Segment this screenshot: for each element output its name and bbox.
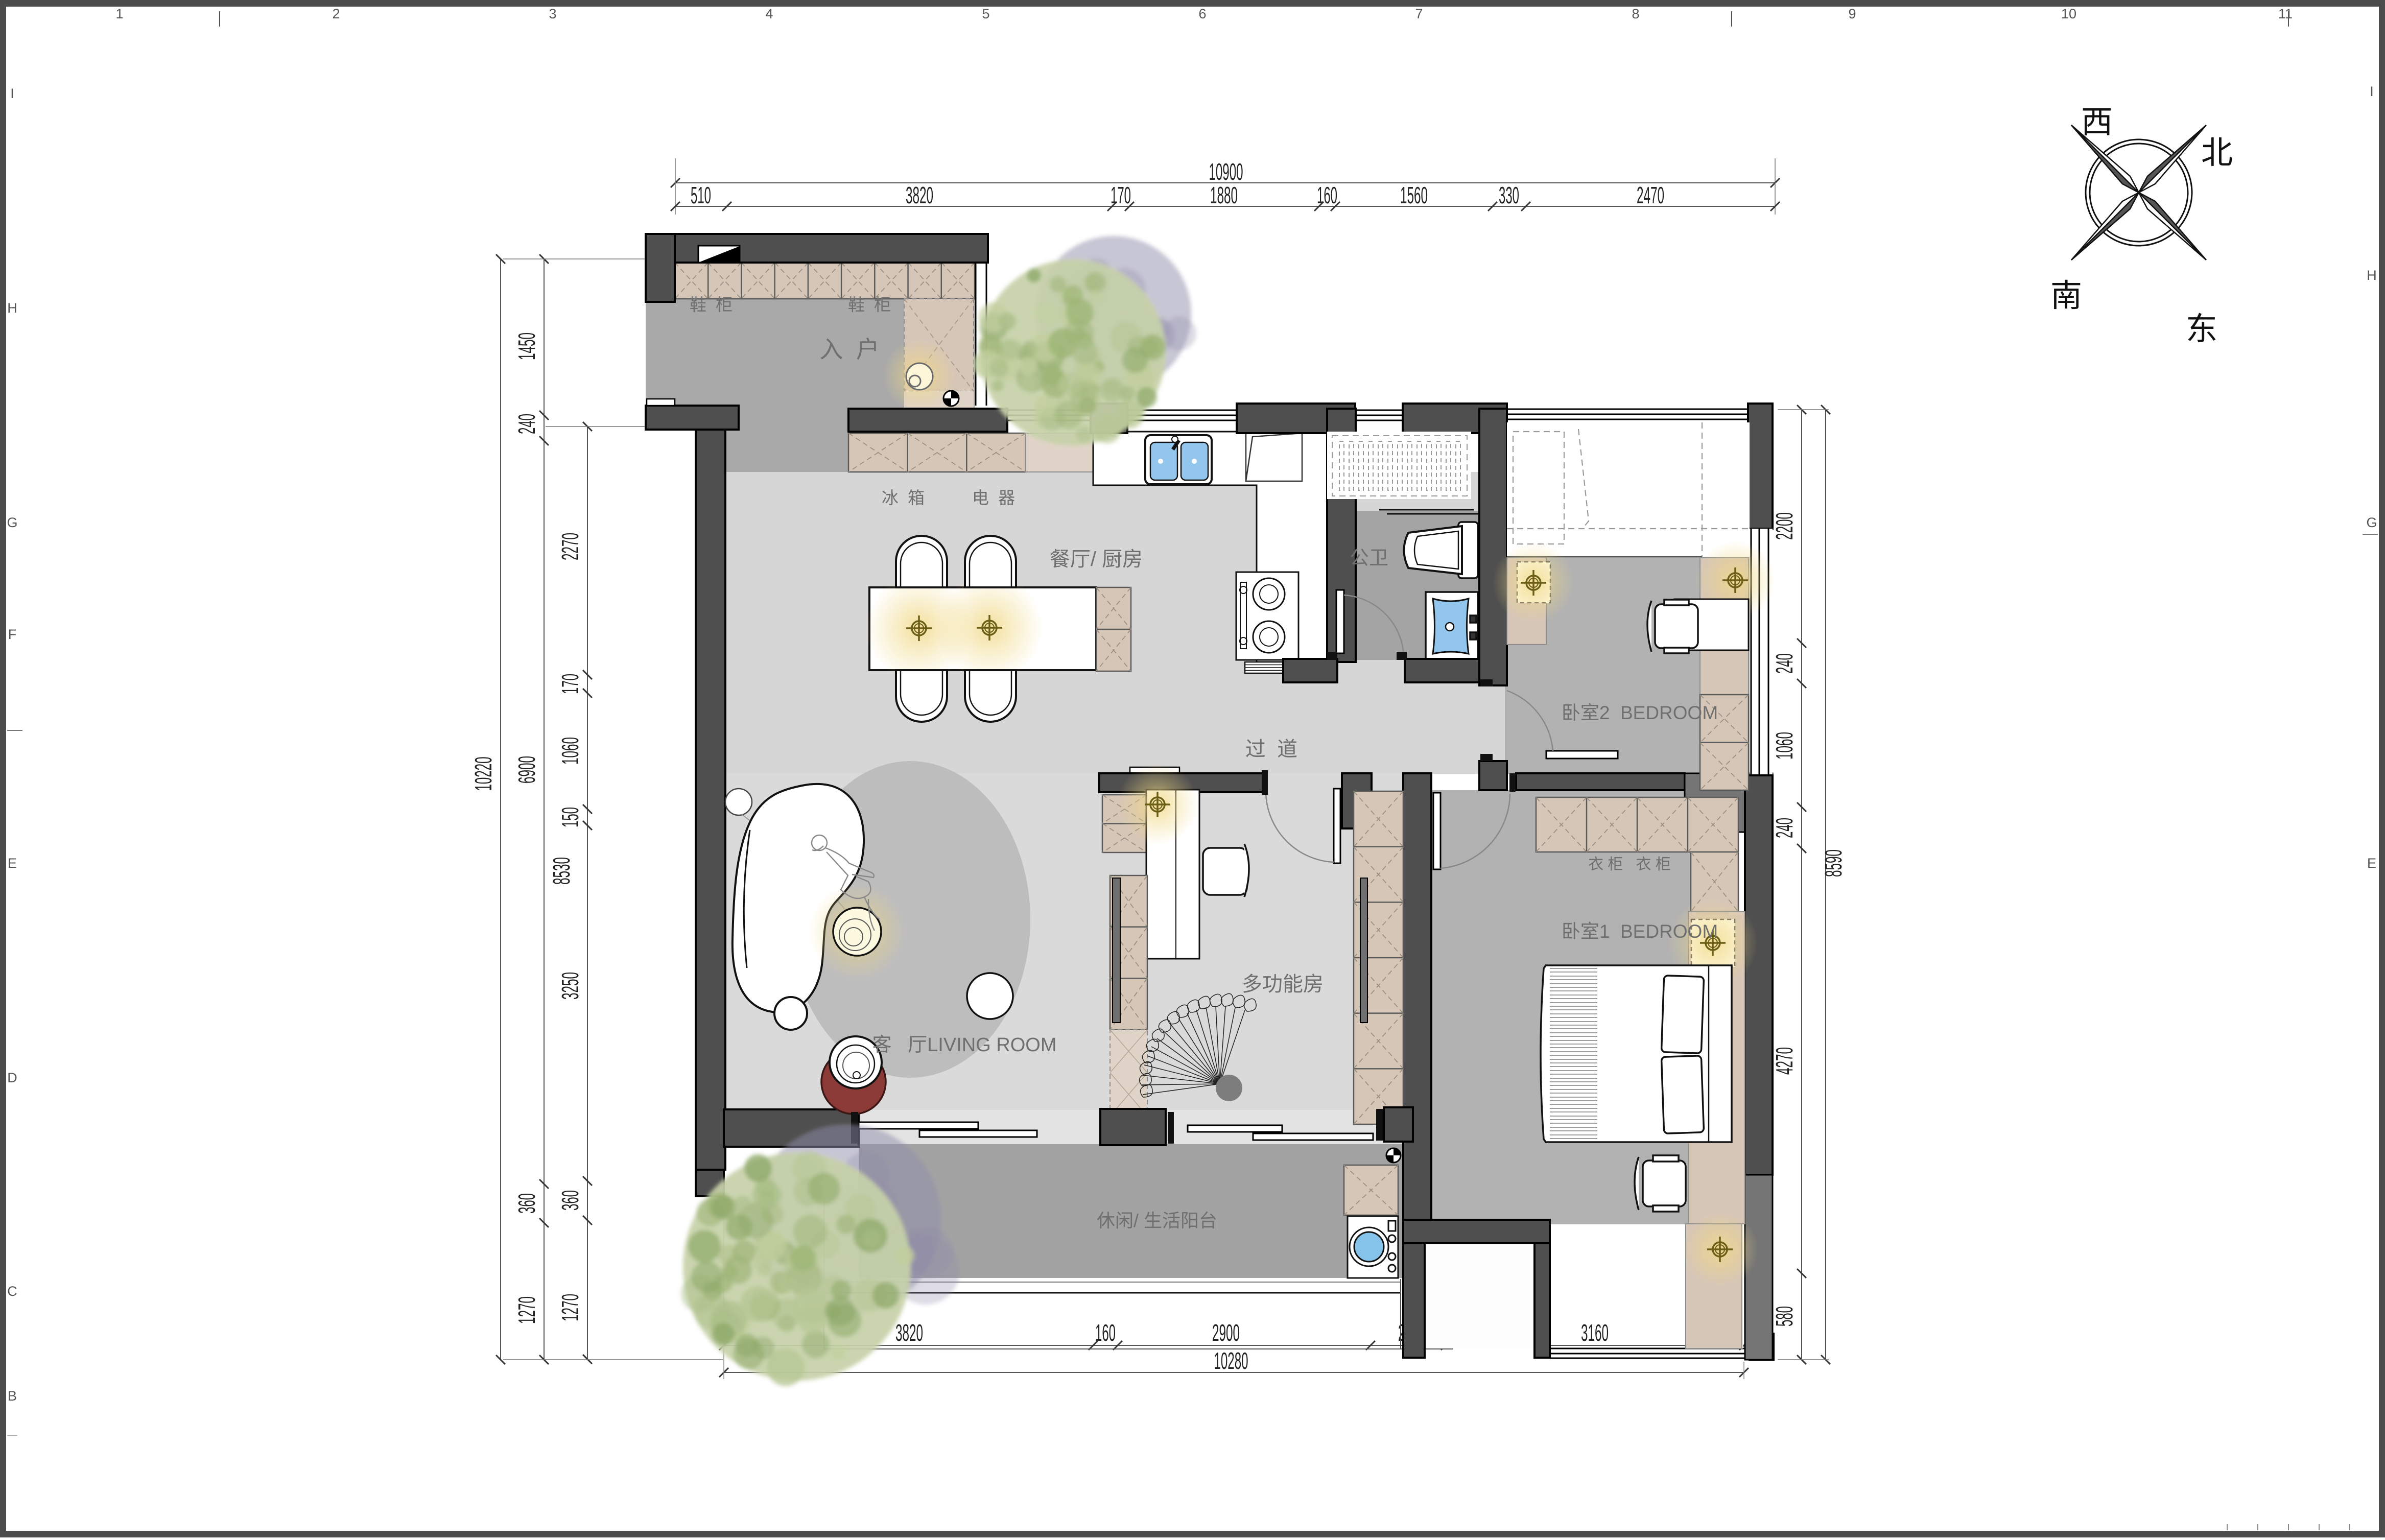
svg-text:过 道: 过 道	[1245, 738, 1297, 761]
svg-text:G: G	[7, 515, 17, 530]
svg-text:C: C	[7, 1284, 17, 1299]
svg-text:1060: 1060	[557, 737, 583, 765]
svg-text:170: 170	[557, 674, 583, 694]
svg-text:240: 240	[1771, 818, 1798, 838]
svg-text:4: 4	[765, 6, 773, 21]
svg-text:3820: 3820	[895, 1319, 923, 1346]
svg-text:北: 北	[2201, 135, 2233, 171]
svg-text:3820: 3820	[906, 182, 933, 208]
svg-text:360: 360	[557, 1190, 583, 1211]
svg-text:2: 2	[332, 6, 340, 21]
svg-text:6900: 6900	[513, 756, 540, 784]
svg-text:10900: 10900	[1209, 158, 1243, 185]
svg-text:2900: 2900	[1212, 1319, 1240, 1346]
svg-text:8530: 8530	[548, 857, 575, 885]
svg-text:10280: 10280	[1214, 1347, 1248, 1374]
svg-text:G: G	[2366, 515, 2377, 530]
svg-text:I: I	[10, 86, 14, 101]
svg-text:150: 150	[557, 807, 583, 827]
svg-text:240: 240	[1771, 653, 1798, 674]
svg-text:E: E	[8, 856, 17, 871]
svg-text:卧室2 BEDROOM: 卧室2 BEDROOM	[1562, 702, 1718, 723]
svg-text:11: 11	[2278, 6, 2293, 21]
svg-text:西: 西	[2081, 105, 2113, 140]
svg-text:170: 170	[1111, 182, 1131, 208]
svg-text:8: 8	[1632, 6, 1639, 21]
svg-text:鞋 柜: 鞋 柜	[690, 295, 733, 314]
svg-text:H: H	[2367, 268, 2377, 283]
svg-text:I: I	[2370, 84, 2374, 99]
svg-text:360: 360	[513, 1193, 540, 1214]
svg-text:240: 240	[513, 414, 540, 434]
svg-text:2470: 2470	[1637, 182, 1664, 208]
svg-text:入 户: 入 户	[819, 336, 880, 363]
svg-text:南: 南	[2050, 278, 2082, 314]
svg-text:1: 1	[115, 6, 123, 21]
svg-text:鞋 柜: 鞋 柜	[848, 295, 891, 314]
svg-text:客 厅LIVING ROOM: 客 厅LIVING ROOM	[872, 1034, 1056, 1056]
svg-text:9: 9	[1848, 6, 1856, 21]
svg-text:1060: 1060	[1771, 732, 1798, 760]
svg-text:3250: 3250	[557, 972, 583, 1000]
svg-text:160: 160	[1095, 1319, 1116, 1346]
svg-text:6: 6	[1198, 6, 1206, 21]
svg-text:F: F	[8, 627, 17, 642]
svg-text:10220: 10220	[470, 757, 497, 791]
svg-text:5: 5	[982, 6, 989, 21]
svg-text:东: 东	[2186, 312, 2217, 347]
svg-text:580: 580	[1771, 1306, 1798, 1326]
svg-text:公卫: 公卫	[1350, 548, 1388, 569]
svg-text:休闲/ 生活阳台: 休闲/ 生活阳台	[1097, 1210, 1217, 1231]
svg-text:电 器: 电 器	[972, 488, 1015, 507]
svg-text:3: 3	[549, 6, 556, 21]
svg-text:510: 510	[691, 182, 711, 208]
svg-text:3160: 3160	[1581, 1319, 1609, 1346]
svg-text:1270: 1270	[557, 1294, 583, 1321]
svg-text:4270: 4270	[1771, 1047, 1798, 1075]
svg-text:330: 330	[1499, 182, 1519, 208]
svg-text:卧室1 BEDROOM: 卧室1 BEDROOM	[1562, 921, 1718, 942]
svg-text:1880: 1880	[1210, 182, 1238, 208]
svg-text:衣 柜 衣 柜: 衣 柜 衣 柜	[1588, 856, 1671, 873]
svg-text:2270: 2270	[557, 533, 583, 560]
svg-text:1450: 1450	[513, 333, 540, 360]
svg-text:E: E	[2367, 856, 2376, 871]
svg-text:冰 箱: 冰 箱	[882, 488, 925, 507]
svg-text:7: 7	[1415, 6, 1423, 21]
svg-text:D: D	[7, 1070, 17, 1085]
svg-text:多功能房: 多功能房	[1242, 973, 1324, 996]
svg-text:H: H	[7, 300, 17, 316]
svg-text:1270: 1270	[513, 1296, 540, 1324]
svg-text:10: 10	[2061, 6, 2076, 21]
svg-text:2200: 2200	[1771, 512, 1798, 540]
svg-text:160: 160	[1317, 182, 1337, 208]
svg-text:1560: 1560	[1400, 182, 1428, 208]
svg-text:餐厅/ 厨房: 餐厅/ 厨房	[1050, 548, 1143, 571]
svg-text:B: B	[8, 1388, 17, 1404]
svg-text:8590: 8590	[1820, 849, 1847, 877]
